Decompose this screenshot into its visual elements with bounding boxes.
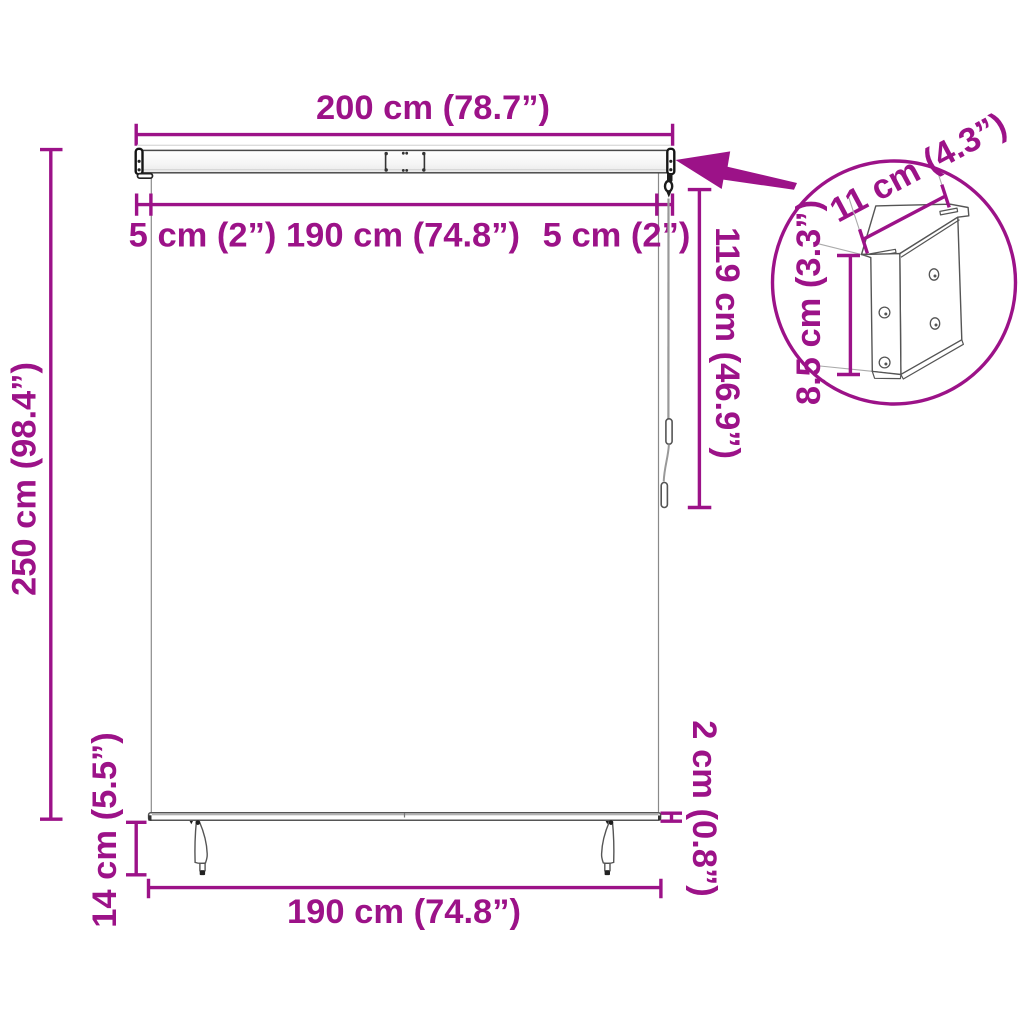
- svg-text:190 cm (74.8”): 190 cm (74.8”): [286, 217, 520, 255]
- svg-text:250 cm (98.4”): 250 cm (98.4”): [6, 362, 44, 596]
- svg-text:190 cm (74.8”): 190 cm (74.8”): [287, 893, 521, 931]
- svg-text:5 cm (2”): 5 cm (2”): [129, 217, 277, 255]
- svg-text:14 cm (5.5”): 14 cm (5.5”): [86, 732, 124, 928]
- svg-text:119 cm (46.9”): 119 cm (46.9”): [708, 227, 746, 459]
- svg-text:8,5 cm (3.3”): 8,5 cm (3.3”): [790, 200, 828, 405]
- svg-text:2 cm (0.8”): 2 cm (0.8”): [685, 720, 723, 896]
- svg-text:200 cm (78.7”): 200 cm (78.7”): [316, 89, 550, 127]
